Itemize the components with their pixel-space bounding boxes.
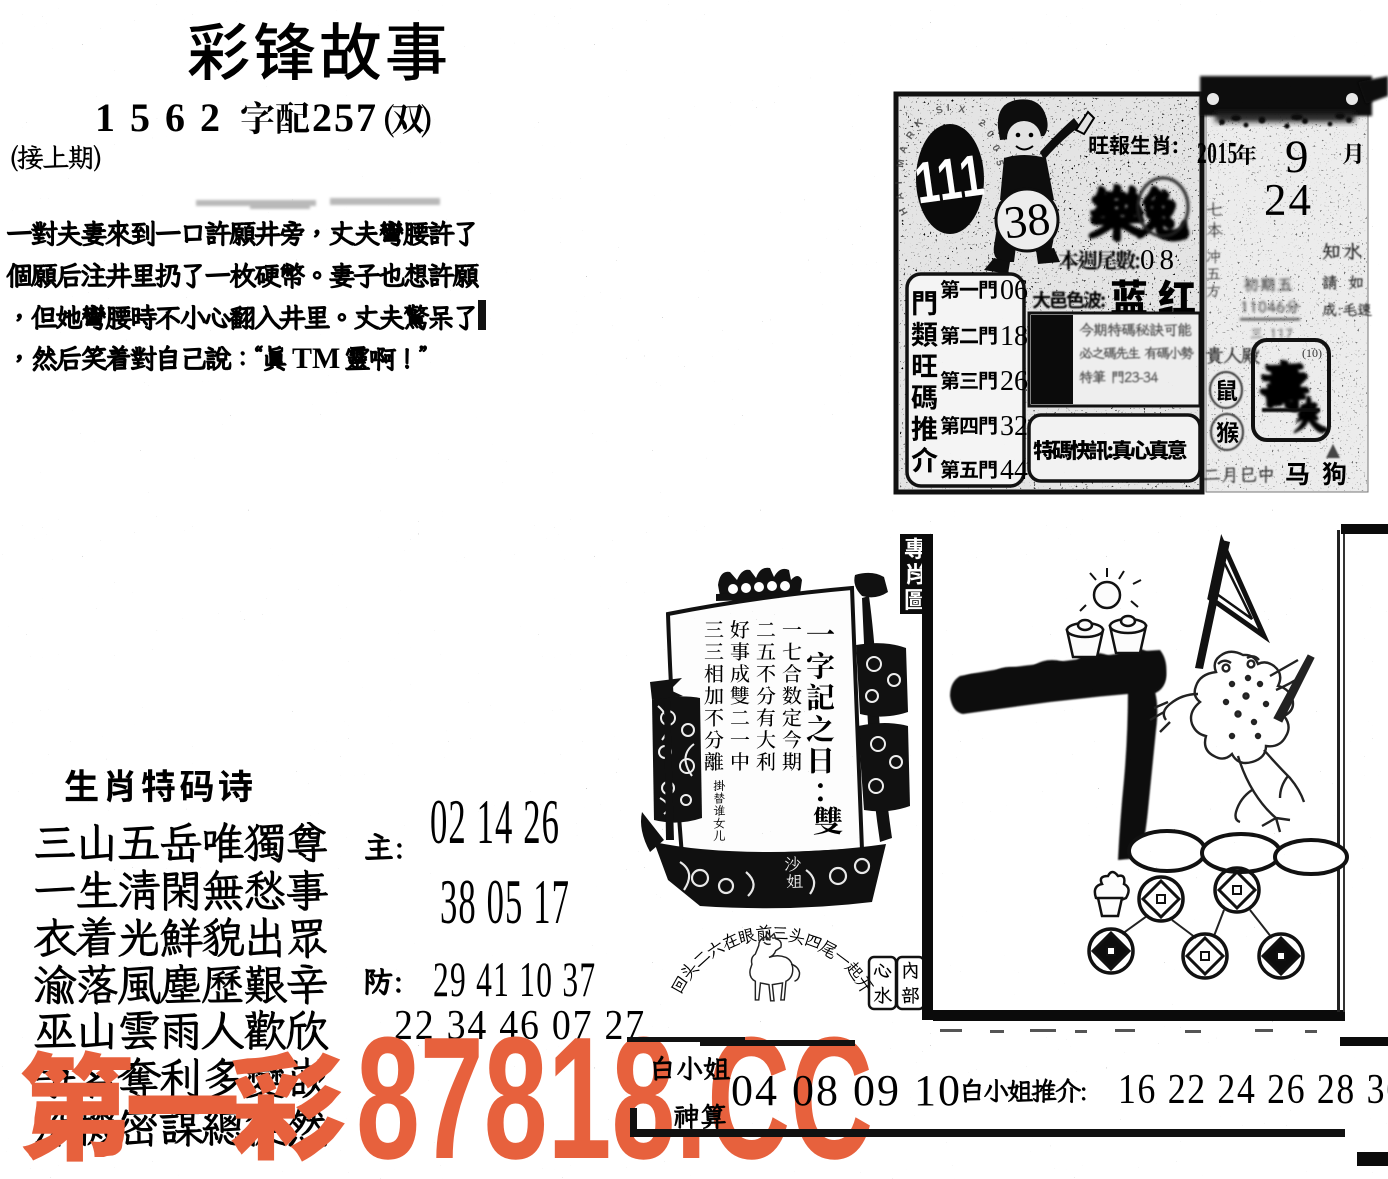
svg-text:16 22 24 26 28 36: 16 22 24 26 28 36 (1118, 1066, 1388, 1112)
svg-text:04 08 09 10: 04 08 09 10 (731, 1066, 962, 1115)
